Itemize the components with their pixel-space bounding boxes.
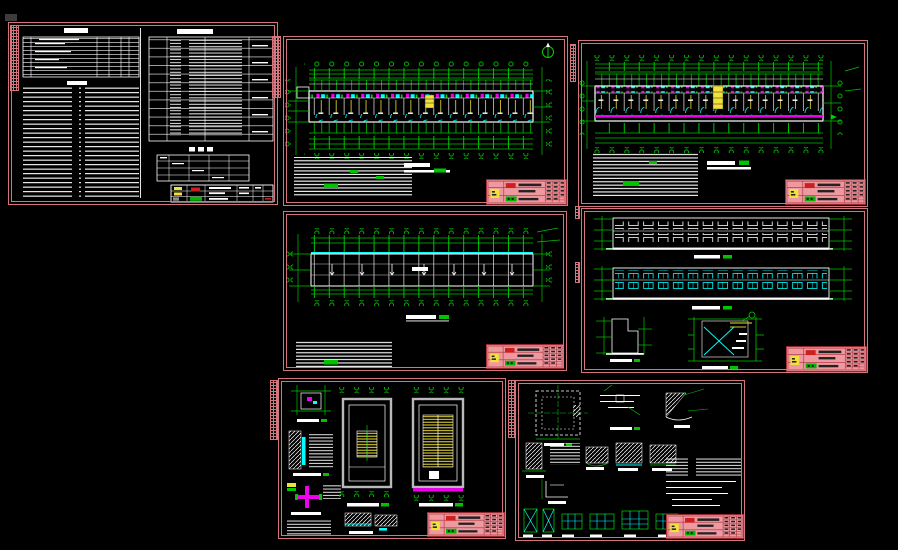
- figure-title: [707, 161, 751, 170]
- gray-block: [5, 14, 17, 21]
- stamp-green: [190, 197, 202, 201]
- sheet-3-standard-floor-plan[interactable]: [578, 40, 868, 207]
- detail-notes-text: [287, 519, 331, 536]
- figure-title: [406, 315, 449, 321]
- column-footing-detail: [528, 385, 588, 446]
- elevation-2-title: [692, 306, 720, 310]
- fold-tab-sheet-2: [272, 36, 281, 98]
- sheet-6-drawing: [279, 379, 505, 538]
- eave-details: [522, 443, 676, 478]
- stair-core: [425, 95, 434, 108]
- stamp-yellow-1: [174, 187, 182, 190]
- finish-schedule-title: [177, 29, 213, 34]
- sheet-7-details[interactable]: [515, 380, 745, 541]
- roof-label: [412, 267, 428, 271]
- sheet-6-stair-details[interactable]: [278, 378, 506, 539]
- drawing-list-title: [64, 28, 88, 33]
- fold-tab-sheet-7: [508, 380, 515, 438]
- plan-top-dimensions: [304, 61, 536, 90]
- canopy-detail: [666, 389, 708, 428]
- finish-schedule-table: [149, 37, 273, 141]
- door-window-types: [523, 509, 678, 537]
- door-window-schedule-table: [157, 155, 249, 181]
- sheet-1-general-notes[interactable]: [8, 22, 278, 205]
- plan-notes-text: [294, 157, 412, 197]
- sheet-5-title-block: [786, 347, 866, 372]
- front-elevation: [594, 216, 852, 259]
- floor-plan-building: [595, 86, 837, 121]
- sheet-2-drawing: [284, 37, 567, 205]
- stair-plan-b: [407, 387, 471, 507]
- type-label-c2: [590, 535, 602, 538]
- fold-tab-sheet-5a: [575, 206, 580, 219]
- plan-bottom-dimensions: [304, 123, 536, 159]
- sheet-5-elevations[interactable]: [581, 208, 868, 373]
- floor-plan-building: [297, 87, 533, 122]
- sheet-1-title-block: [171, 185, 273, 202]
- type-label-c1: [562, 535, 574, 538]
- fold-tab-sheet-6: [270, 380, 278, 440]
- plan-notes-text: [593, 153, 698, 197]
- lintel-detail: [600, 385, 640, 430]
- sheet-4-drawing: [284, 212, 566, 370]
- stamp-yellow-2: [174, 193, 182, 196]
- cad-canvas: [0, 0, 898, 550]
- roof-bottom-dimensions: [306, 286, 536, 306]
- sheet-2-title-block: [486, 180, 566, 205]
- stamp-grid-sheet-1: [10, 25, 19, 91]
- junction-detail: [287, 483, 341, 515]
- type-label-m1: [523, 535, 533, 538]
- type-label-c3: [624, 535, 636, 538]
- parapet-detail: [542, 479, 568, 504]
- type-label-m2: [542, 535, 552, 538]
- entry-detail: [291, 385, 331, 422]
- rear-elevation: [594, 266, 852, 310]
- general-notes-text: [23, 87, 139, 199]
- general-notes-title: [67, 81, 87, 85]
- sheet-7-drawing: [516, 381, 744, 540]
- plan-notes-text: [296, 340, 392, 368]
- threshold-details: [345, 513, 397, 534]
- sheet-2-first-floor-plan[interactable]: [283, 36, 568, 206]
- gable-section-detail: [596, 317, 652, 362]
- stair-plan-a: [337, 387, 399, 507]
- fold-tab-sheet-3: [570, 44, 576, 82]
- sheet-4-title-block: [486, 345, 563, 369]
- stair-core: [713, 86, 723, 109]
- corridor-band: [595, 115, 823, 118]
- drawing-list-table: [23, 37, 139, 77]
- plan-top-dimensions: [591, 55, 827, 86]
- roof-top-dimensions: [306, 228, 560, 252]
- door-window-schedule-title: [189, 147, 213, 152]
- north-arrow-icon: [543, 43, 554, 59]
- sheet-3-title-block: [785, 180, 865, 205]
- stamp-red: [191, 188, 200, 192]
- sheet-3-drawing: [579, 41, 867, 206]
- sheet-1-drawing: [9, 23, 277, 204]
- wall-section-detail: [289, 431, 333, 476]
- sheet-6-title-block: [427, 513, 504, 537]
- detail-notes-text: [666, 457, 742, 506]
- sheet-5-drawing: [582, 209, 867, 372]
- roof-slab: [311, 252, 533, 286]
- stair-section-detail: [688, 312, 764, 370]
- sheet-7-title-block: [666, 515, 743, 539]
- fold-tab-sheet-5b: [575, 262, 580, 283]
- stamp-gray: [173, 197, 179, 200]
- sheet-4-roof-plan[interactable]: [283, 211, 567, 371]
- plan-bottom-dimensions: [591, 123, 827, 153]
- elevation-1-title: [694, 255, 720, 259]
